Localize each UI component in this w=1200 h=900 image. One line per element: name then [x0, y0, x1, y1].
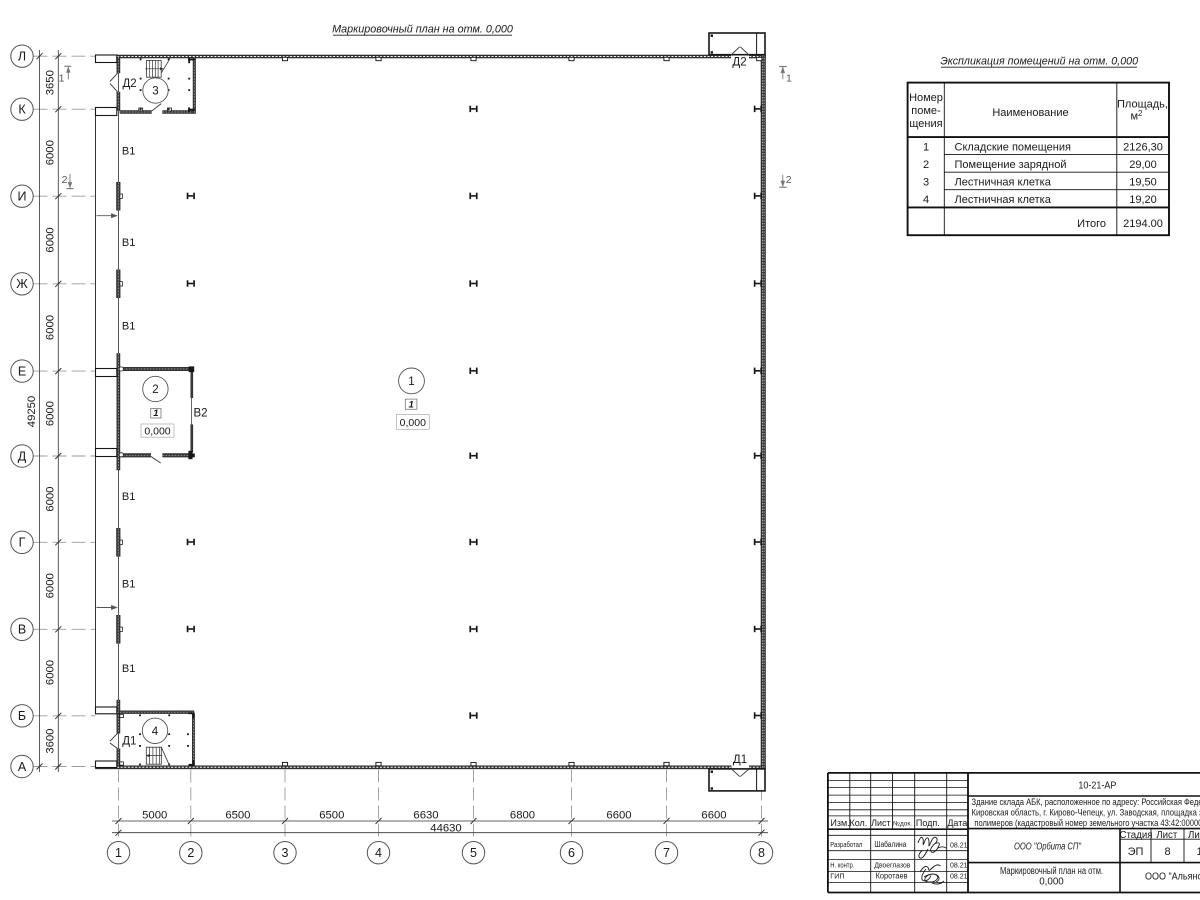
svg-text:1: 1 [153, 408, 158, 419]
svg-text:Н. контр.: Н. контр. [830, 860, 854, 869]
svg-text:08.21: 08.21 [950, 874, 968, 881]
svg-text:Шабалина: Шабалина [874, 840, 907, 849]
svg-text:Г: Г [19, 536, 26, 550]
svg-text:0,000: 0,000 [144, 425, 170, 437]
svg-text:49250: 49250 [26, 396, 38, 427]
svg-text:08.21: 08.21 [950, 842, 968, 849]
svg-text:5000: 5000 [142, 809, 167, 821]
svg-text:6000: 6000 [44, 487, 56, 512]
svg-text:2126,30: 2126,30 [1123, 142, 1163, 154]
svg-text:6630: 6630 [413, 809, 438, 821]
svg-text:19,50: 19,50 [1129, 177, 1157, 189]
svg-text:3: 3 [282, 846, 289, 860]
svg-text:6000: 6000 [44, 227, 56, 252]
svg-text:1: 1 [409, 399, 414, 410]
svg-text:6000: 6000 [44, 140, 56, 165]
svg-text:Д: Д [18, 449, 27, 463]
svg-text:№док.: №док. [893, 820, 912, 827]
svg-text:1: 1 [408, 376, 414, 388]
svg-text:6000: 6000 [44, 315, 56, 340]
svg-text:Кировская область, г. Кирово-Ч: Кировская область, г. Кирово-Чепецк, ул.… [972, 808, 1200, 818]
svg-text:Складские помещения: Складские помещения [955, 142, 1071, 154]
svg-text:3: 3 [152, 86, 158, 98]
svg-text:4: 4 [375, 846, 382, 860]
svg-text:3650: 3650 [44, 70, 56, 95]
svg-text:Наименование: Наименование [992, 107, 1068, 119]
svg-text:6800: 6800 [510, 809, 535, 821]
svg-text:1: 1 [786, 73, 792, 85]
svg-text:Стадия: Стадия [1119, 830, 1152, 841]
svg-text:4: 4 [923, 194, 929, 206]
svg-text:10: 10 [1197, 846, 1200, 858]
svg-text:7: 7 [663, 846, 670, 860]
svg-text:19,20: 19,20 [1129, 194, 1157, 206]
svg-text:0,000: 0,000 [1039, 877, 1064, 888]
svg-text:полимеров (кадастровый номер з: полимеров (кадастровый номер земельного … [974, 818, 1200, 828]
svg-text:ГИП: ГИП [830, 871, 844, 880]
svg-text:Листов: Листов [1188, 830, 1200, 841]
svg-text:6500: 6500 [319, 809, 344, 821]
svg-text:поме-: поме- [911, 105, 941, 117]
svg-text:10-21-АР: 10-21-АР [1078, 780, 1116, 792]
svg-text:Изм.: Изм. [830, 818, 849, 828]
svg-text:6600: 6600 [606, 809, 631, 821]
svg-text:Подп.: Подп. [916, 818, 940, 828]
svg-text:44630: 44630 [430, 822, 461, 834]
svg-text:В1: В1 [122, 320, 135, 332]
svg-text:2: 2 [187, 846, 194, 860]
svg-text:Лист: Лист [1156, 830, 1178, 841]
svg-text:2: 2 [152, 384, 158, 396]
svg-text:3: 3 [923, 177, 929, 189]
svg-text:3600: 3600 [44, 729, 56, 754]
svg-text:6500: 6500 [225, 809, 250, 821]
svg-text:2: 2 [786, 174, 792, 186]
svg-text:В1: В1 [122, 663, 135, 675]
svg-text:К: К [18, 103, 26, 117]
svg-text:Д2: Д2 [123, 78, 137, 90]
svg-text:Лестничная клетка: Лестничная клетка [955, 194, 1052, 206]
svg-text:2: 2 [923, 159, 929, 171]
svg-text:В: В [18, 623, 26, 637]
svg-text:Здание склада АБК, расположенн: Здание склада АБК, расположенное по адре… [972, 797, 1200, 807]
svg-text:1: 1 [115, 846, 122, 860]
svg-text:А: А [18, 760, 27, 774]
svg-text:И: И [18, 190, 27, 204]
svg-text:Маркировочный план на отм.: Маркировочный план на отм. [1000, 866, 1103, 877]
svg-text:Дата: Дата [947, 818, 967, 828]
svg-text:Б: Б [18, 709, 26, 723]
svg-text:6000: 6000 [44, 573, 56, 598]
svg-text:Л: Л [18, 50, 26, 64]
svg-text:Лист: Лист [871, 818, 891, 828]
svg-text:В1: В1 [122, 491, 135, 503]
svg-text:Лестничная клетка: Лестничная клетка [955, 177, 1052, 189]
svg-text:В2: В2 [193, 408, 207, 420]
svg-text:ЭП: ЭП [1128, 846, 1144, 858]
svg-text:6000: 6000 [44, 401, 56, 426]
svg-text:Кол.: Кол. [849, 818, 867, 828]
svg-text:5: 5 [470, 846, 477, 860]
svg-text:8: 8 [758, 846, 765, 860]
svg-text:08.21: 08.21 [950, 863, 968, 870]
svg-text:Д2: Д2 [732, 57, 746, 69]
svg-text:Е: Е [18, 364, 26, 378]
svg-text:Помещение зарядной: Помещение зарядной [955, 159, 1067, 171]
svg-text:Ж: Ж [16, 277, 28, 291]
svg-text:6: 6 [568, 846, 575, 860]
svg-text:Маркировочный план на отм. 0,0: Маркировочный план на отм. 0,000 [332, 24, 513, 36]
svg-text:4: 4 [152, 726, 159, 738]
svg-text:Итого: Итого [1077, 218, 1106, 230]
svg-text:8: 8 [1164, 846, 1170, 858]
svg-text:В1: В1 [122, 145, 135, 157]
svg-text:Номер: Номер [909, 92, 943, 104]
svg-text:Д1: Д1 [122, 736, 136, 748]
svg-text:ООО "Орбита СП": ООО "Орбита СП" [1014, 841, 1081, 852]
svg-text:6600: 6600 [701, 809, 726, 821]
svg-text:ООО "Альянс ПБ": ООО "Альянс ПБ" [1145, 872, 1200, 883]
svg-text:В1: В1 [122, 237, 135, 249]
svg-text:1: 1 [59, 73, 65, 85]
svg-text:0,000: 0,000 [400, 417, 426, 429]
svg-text:Двоеглазов: Двоеглазов [874, 860, 910, 869]
svg-text:Д1: Д1 [733, 754, 747, 766]
svg-text:2194.00: 2194.00 [1123, 218, 1163, 230]
svg-text:2: 2 [62, 174, 68, 186]
svg-text:Разработал: Разработал [830, 840, 862, 849]
svg-text:29,00: 29,00 [1129, 159, 1157, 171]
svg-text:В1: В1 [122, 578, 135, 590]
svg-text:Коротаев: Коротаев [876, 871, 908, 880]
svg-text:Экспликация помещений на отм.: Экспликация помещений на отм. 0,000 [940, 56, 1138, 68]
svg-text:щения: щения [909, 118, 942, 130]
svg-text:6000: 6000 [44, 660, 56, 685]
svg-text:1: 1 [923, 142, 929, 154]
